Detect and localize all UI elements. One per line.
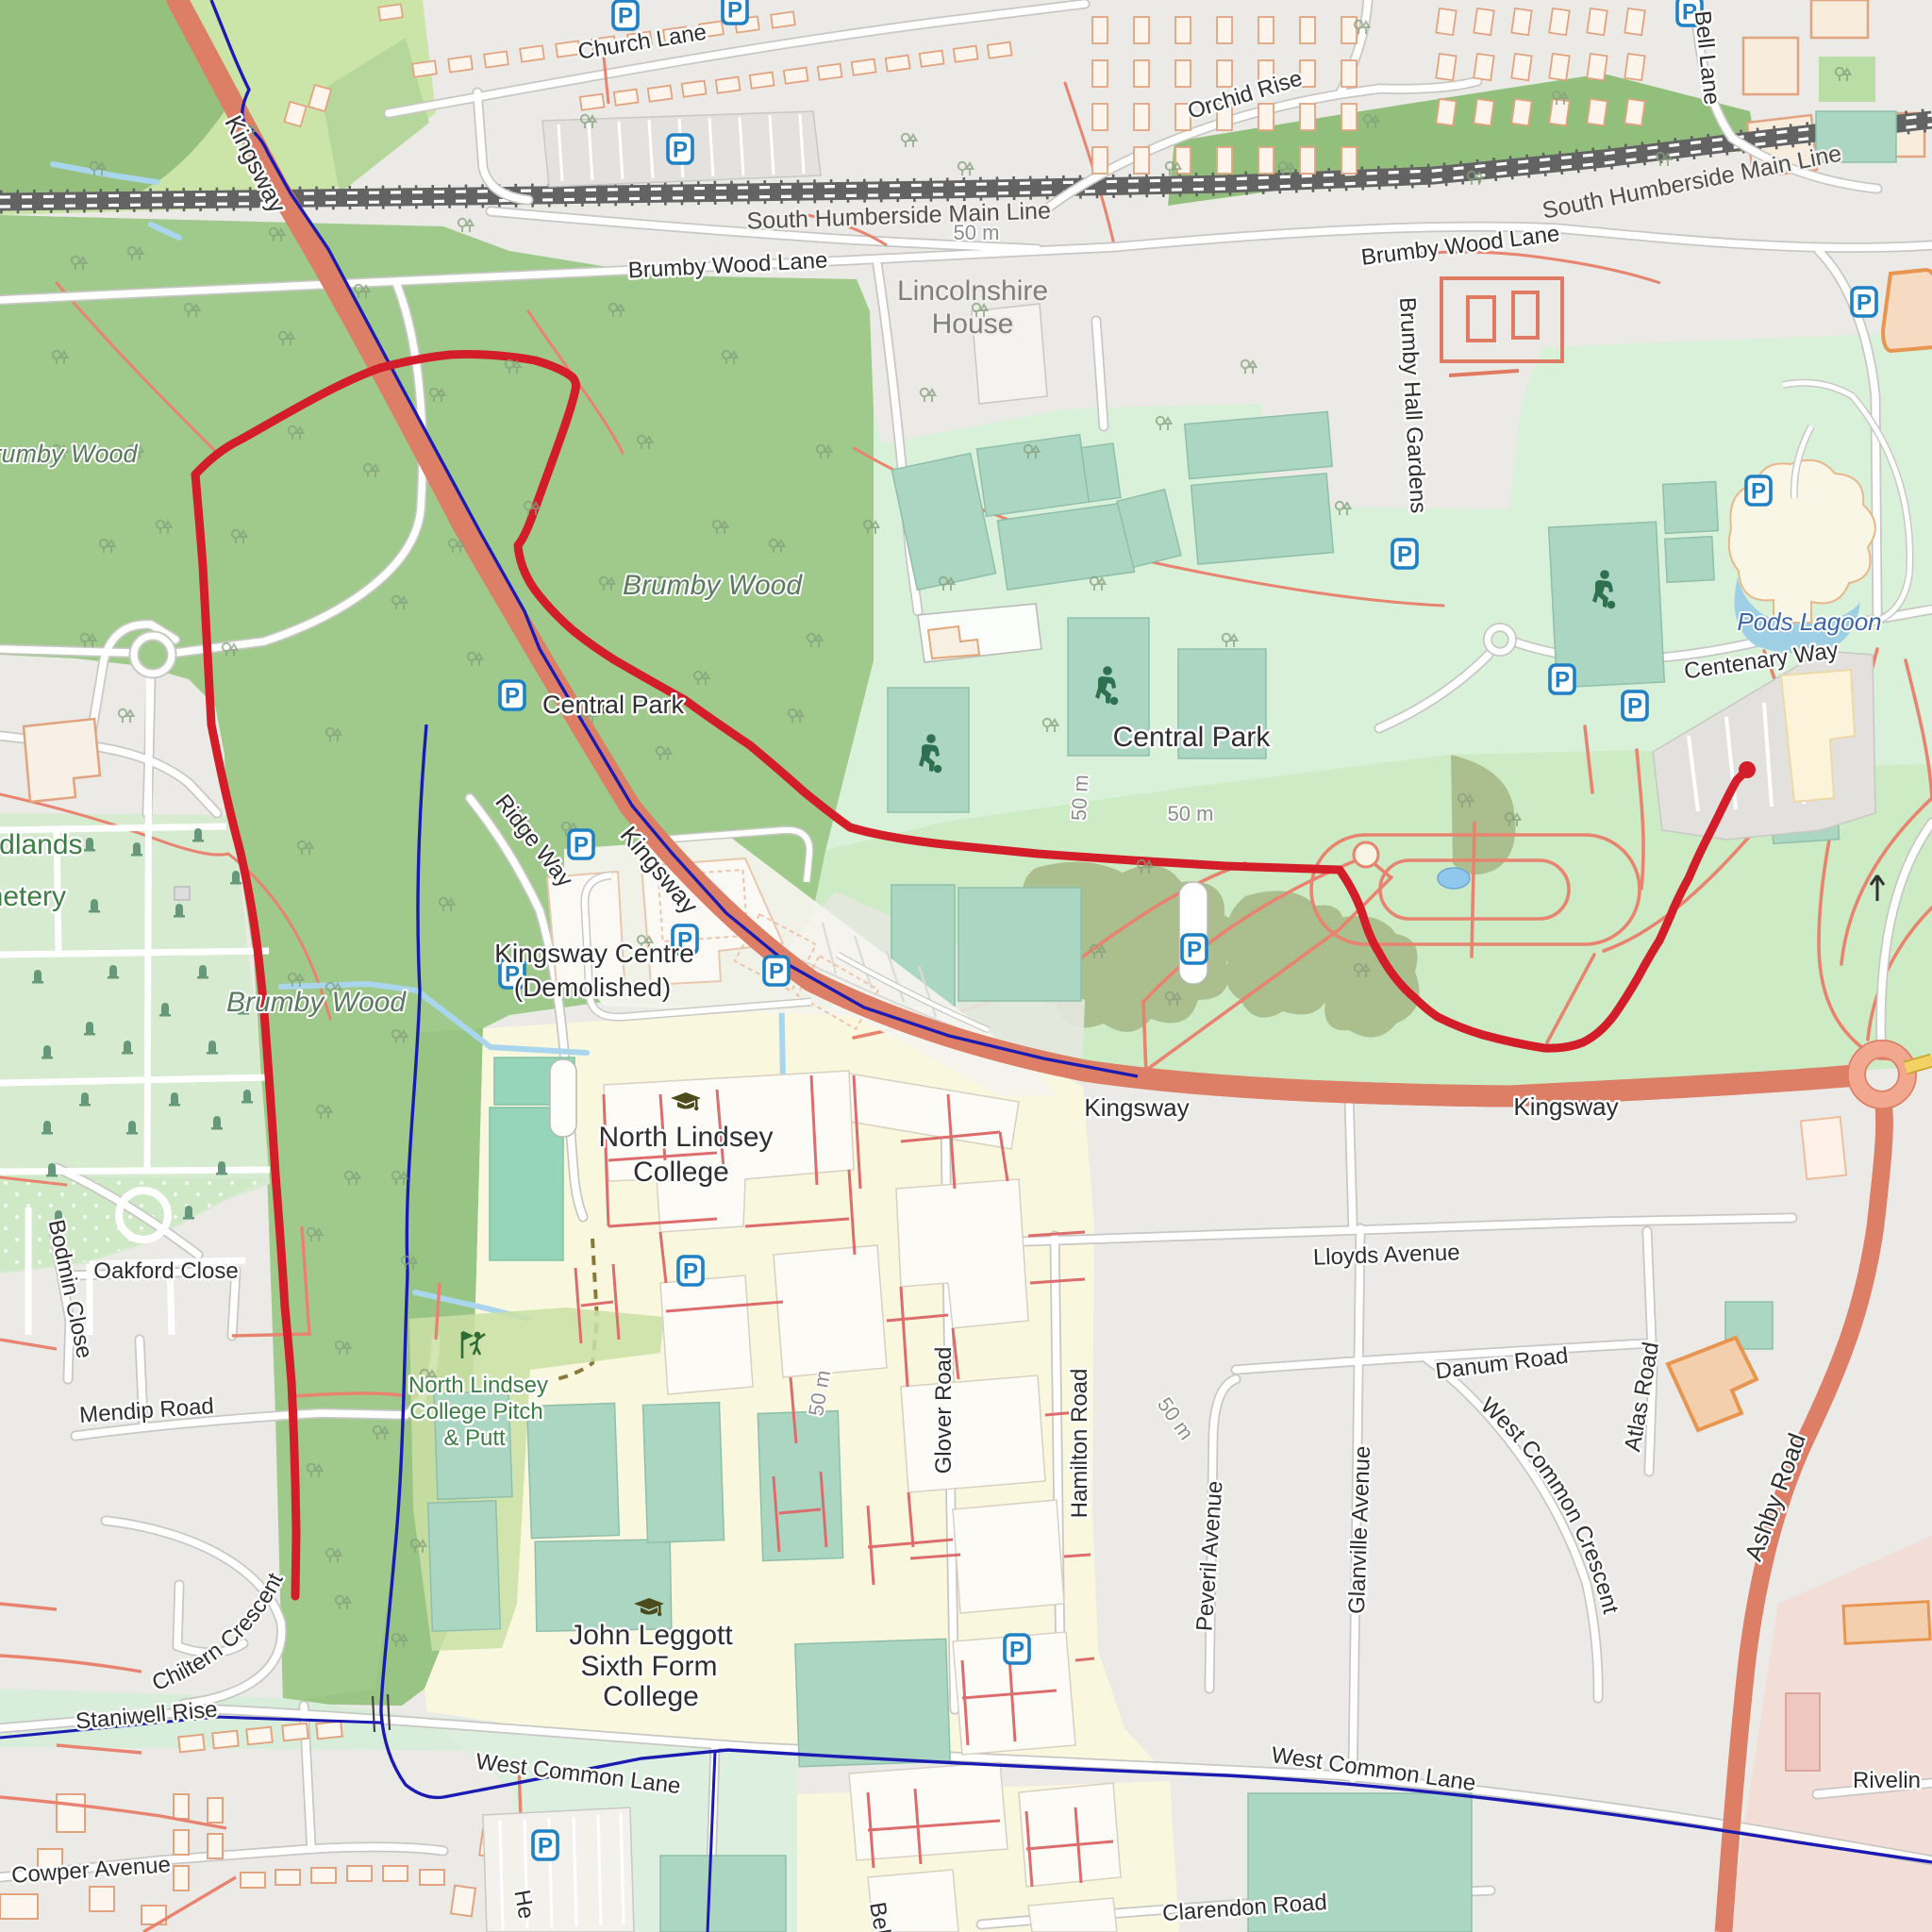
svg-text:College: College <box>603 1681 699 1712</box>
svg-text:Kingsway: Kingsway <box>1513 1092 1618 1121</box>
svg-text:Bel: Bel <box>864 1900 895 1932</box>
svg-text:Woodlands: Woodlands <box>0 829 83 860</box>
svg-text:Glover Road: Glover Road <box>931 1347 957 1474</box>
svg-text:& Putt: & Putt <box>443 1425 506 1451</box>
svg-text:Brumby Wood: Brumby Wood <box>623 570 803 601</box>
svg-text:Pods Lagoon: Pods Lagoon <box>1737 608 1881 636</box>
svg-text:Kingsway: Kingsway <box>1084 1093 1189 1122</box>
svg-text:50 m: 50 m <box>1168 802 1214 825</box>
svg-text:North Lindsey: North Lindsey <box>408 1373 548 1398</box>
svg-text:Central Park: Central Park <box>542 691 685 719</box>
svg-text:Brumby Wood: Brumby Wood <box>226 987 407 1018</box>
svg-text:Sixth Form: Sixth Form <box>580 1651 717 1682</box>
svg-text:Lloyds Avenue: Lloyds Avenue <box>1312 1240 1460 1270</box>
svg-text:College Pitch: College Pitch <box>409 1399 542 1424</box>
svg-text:Hamilton Road: Hamilton Road <box>1067 1369 1092 1519</box>
svg-text:North Lindsey: North Lindsey <box>598 1122 773 1153</box>
svg-text:John Leggott: John Leggott <box>569 1620 733 1651</box>
svg-text:Lincolnshire: Lincolnshire <box>897 275 1048 307</box>
svg-text:Kingsway Centre: Kingsway Centre <box>494 939 694 968</box>
svg-text:Rivelin: Rivelin <box>1853 1768 1921 1793</box>
svg-text:College: College <box>633 1157 729 1188</box>
svg-text:Brumby Wood: Brumby Wood <box>0 440 139 468</box>
svg-text:50 m: 50 m <box>954 221 1000 244</box>
svg-text:Cemetery: Cemetery <box>0 881 66 912</box>
svg-text:(Demolished): (Demolished) <box>514 973 672 1002</box>
svg-text:House: House <box>932 308 1014 340</box>
svg-text:Oakford Close: Oakford Close <box>93 1258 238 1284</box>
svg-text:50 m: 50 m <box>1067 774 1093 822</box>
svg-text:He: He <box>508 1888 539 1921</box>
svg-text:Central Park: Central Park <box>1113 722 1272 753</box>
